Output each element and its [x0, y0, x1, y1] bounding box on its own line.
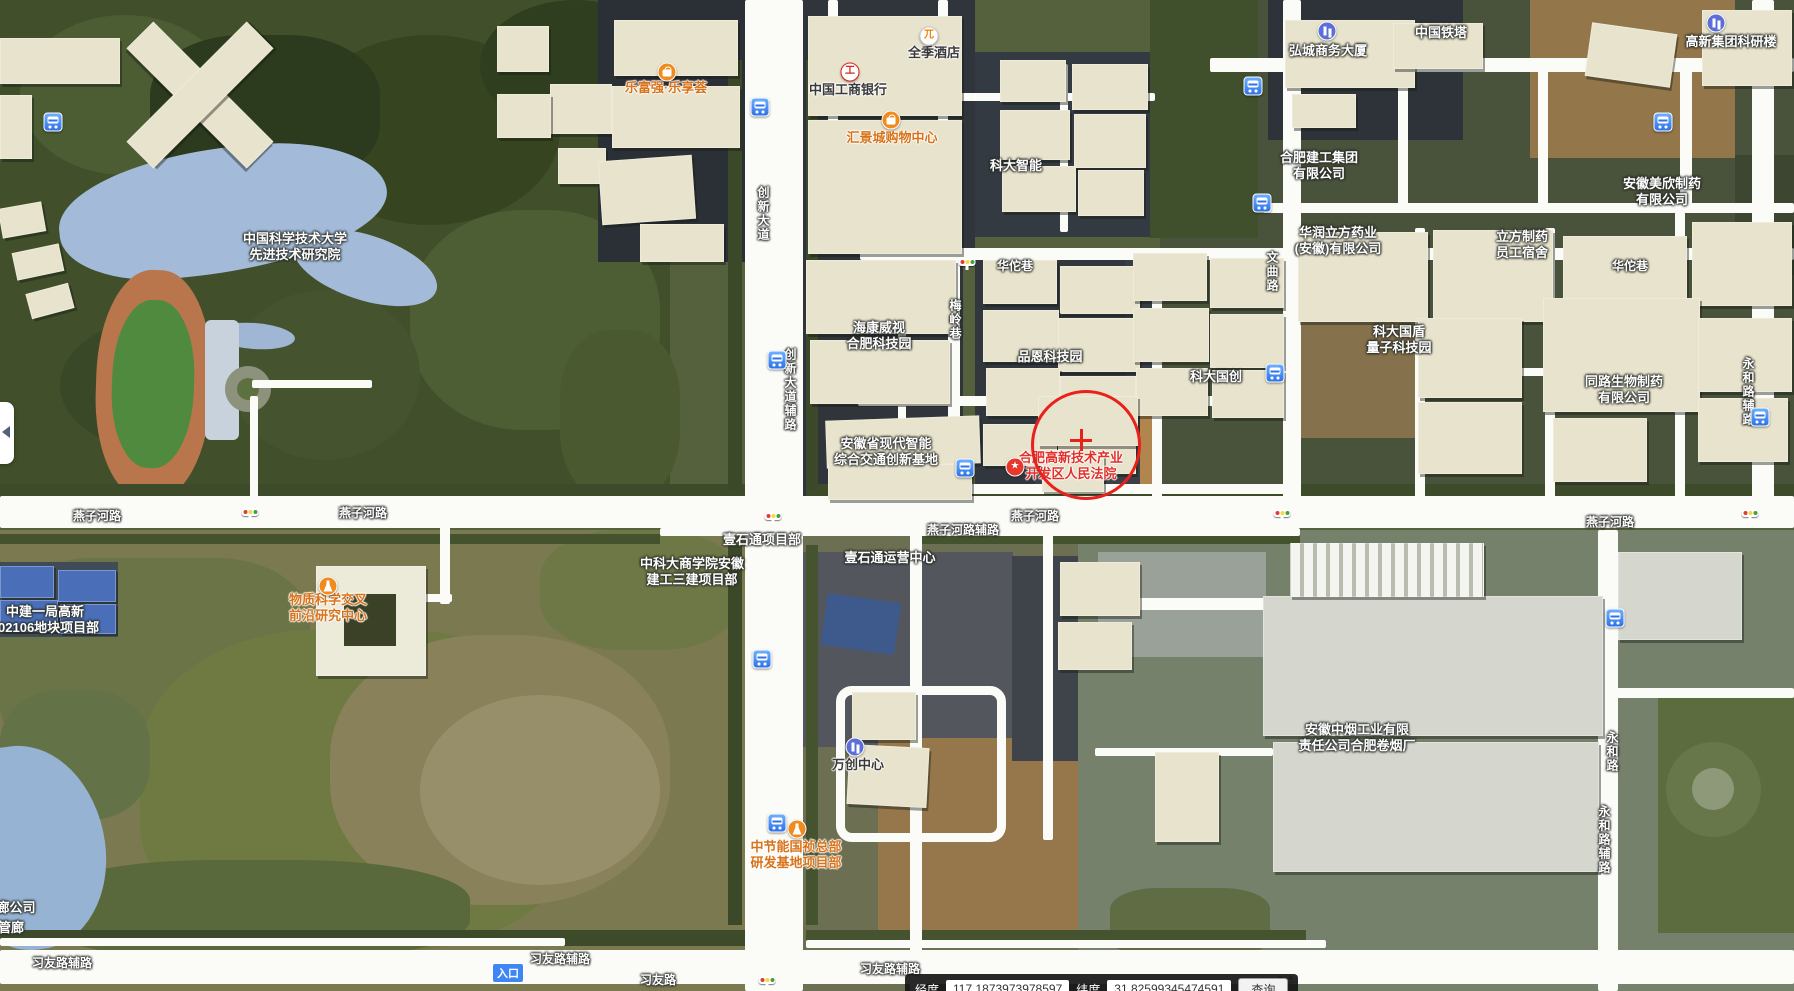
longitude-value[interactable]: 117.1873973978597	[946, 980, 1069, 991]
query-button[interactable]: 查询	[1238, 978, 1288, 991]
entrance-badge: 入口	[492, 963, 524, 983]
chevron-left-icon	[2, 426, 10, 438]
ui-layer: 入口 经度 117.1873973978597 纬度 31.8259934547…	[0, 0, 1794, 991]
latitude-label: 纬度	[1076, 981, 1100, 991]
coordinate-bar: 经度 117.1873973978597 纬度 31.8259934547459…	[905, 974, 1298, 991]
satellite-map[interactable]: 燕子河路燕子河路燕子河路燕子河路燕子河路辅路习友路辅路习友路辅路习友路辅路习友路…	[0, 0, 1794, 991]
sidebar-collapse-handle[interactable]	[0, 402, 14, 464]
longitude-label: 经度	[915, 981, 939, 991]
latitude-value[interactable]: 31.82599345474591	[1107, 980, 1231, 991]
